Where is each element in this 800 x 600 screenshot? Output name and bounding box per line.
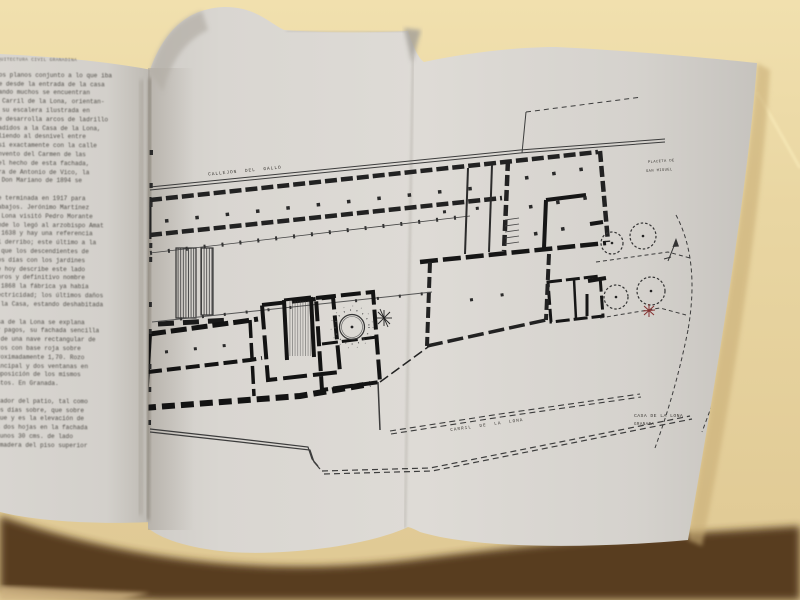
text-line: de la Casa, estando deshabitada xyxy=(0,300,120,310)
text-line: electricidad; los últimos daños xyxy=(0,291,120,301)
foldout-page xyxy=(148,7,757,553)
plan-title-line1: CASA DE LA LONA xyxy=(634,413,683,419)
text-line: restos. En Granada. xyxy=(0,380,119,390)
text-line: y el hecho de esta fachada, xyxy=(0,159,121,169)
text-line: que desarrolla arcos de ladrillo xyxy=(0,115,121,125)
text-line: chos planos conjunto a lo que iba xyxy=(0,71,121,81)
text-line: en que los descendientes de xyxy=(0,247,120,257)
plan-title-line2: GRANADA xyxy=(634,423,654,427)
text-line: mirador del patio, tal como xyxy=(0,397,119,407)
text-line: unos días con los jardines xyxy=(0,256,120,266)
left-page-text: ARQUITECTURA CIVIL GRANADINA chos planos… xyxy=(0,57,121,478)
book-photo: CALLEJON DEL GALLO PLACETA DE SAN MIGUEL… xyxy=(0,0,800,600)
text-line: la madera del piso superior xyxy=(0,441,119,451)
text-line: aproximadamente 1,70. Rozo xyxy=(0,353,119,363)
text-line: muros con base roja sobre xyxy=(0,344,119,354)
text-line: la Lona visitó Pedro Morante xyxy=(0,212,120,222)
text-line: de Don Mariano de 1894 se xyxy=(0,177,121,187)
running-header: ARQUITECTURA CIVIL GRANADINA xyxy=(0,57,121,67)
